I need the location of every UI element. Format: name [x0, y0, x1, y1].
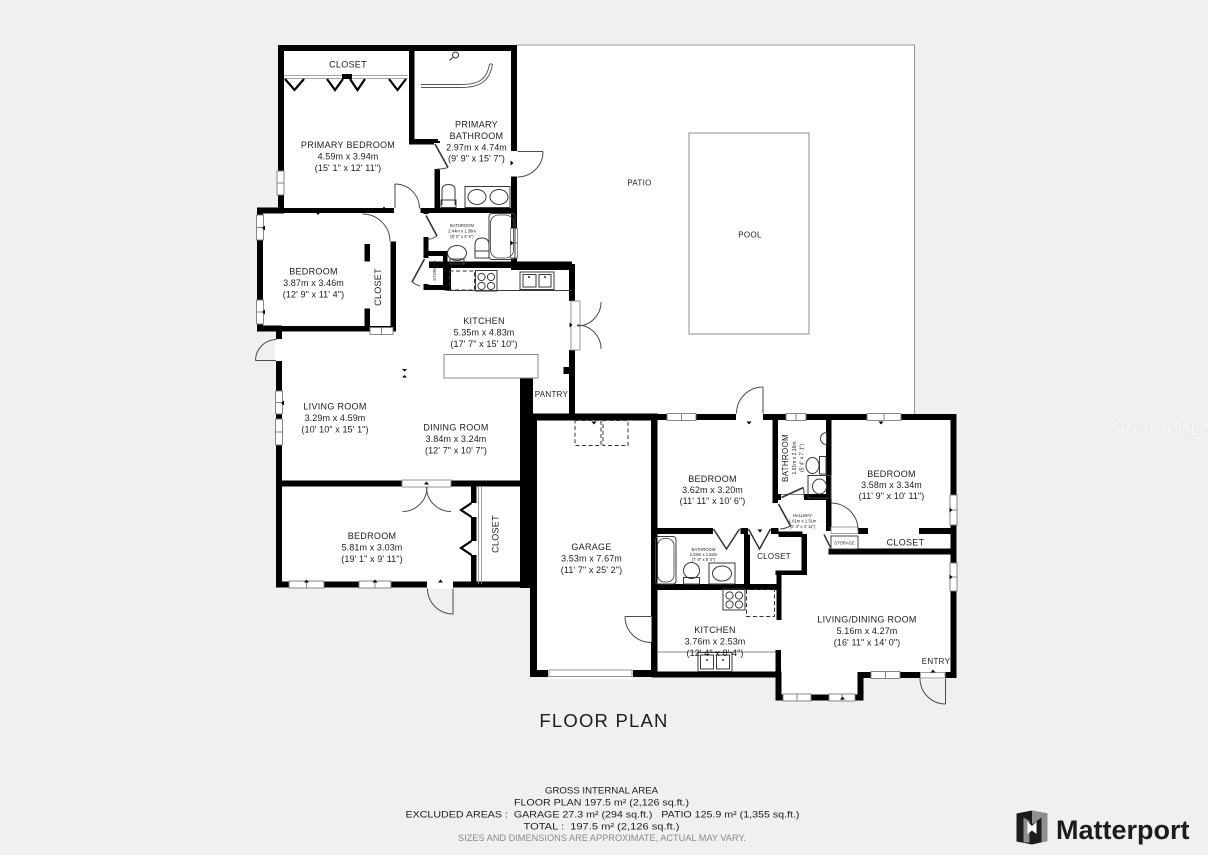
svg-text:BATHROOM: BATHROOM	[450, 131, 504, 141]
svg-text:PATIO: PATIO	[627, 179, 651, 188]
svg-text:1.61m x 2.16m: 1.61m x 2.16m	[792, 441, 798, 474]
svg-text:3.87m x 3.46m: 3.87m x 3.46m	[283, 278, 344, 288]
svg-text:StellarMLS: StellarMLS	[1112, 418, 1208, 440]
svg-text:CLOSET: CLOSET	[887, 538, 925, 548]
svg-text:PRIMARY BEDROOM: PRIMARY BEDROOM	[301, 140, 395, 150]
svg-text:5.81m x 3.03m: 5.81m x 3.03m	[342, 543, 403, 553]
svg-text:5.16m x 4.27m: 5.16m x 4.27m	[837, 626, 898, 636]
svg-text:STORAGE: STORAGE	[432, 260, 437, 281]
svg-text:ENTRY: ENTRY	[922, 657, 951, 666]
svg-text:3.62m x 3.20m: 3.62m x 3.20m	[682, 485, 743, 495]
svg-text:CLOSET: CLOSET	[491, 515, 501, 553]
svg-text:FLOOR PLAN: FLOOR PLAN	[539, 710, 668, 731]
svg-text:(5' 4" x 4' 11"): (5' 4" x 4' 11")	[790, 524, 816, 529]
svg-text:3.76m x 2.53m: 3.76m x 2.53m	[685, 637, 746, 647]
svg-text:LIVING/DINING ROOM: LIVING/DINING ROOM	[817, 615, 916, 625]
svg-text:(7' 6" x 5' 0"): (7' 6" x 5' 0")	[692, 557, 716, 562]
svg-text:(11' 9" x 10' 11"): (11' 9" x 10' 11")	[859, 491, 925, 501]
svg-text:(11' 7" x 25' 2"): (11' 7" x 25' 2")	[561, 565, 622, 575]
svg-text:3.84m x 3.24m: 3.84m x 3.24m	[426, 434, 487, 444]
svg-text:3.58m x 3.34m: 3.58m x 3.34m	[861, 480, 922, 490]
svg-text:(16' 11" x 14' 0"): (16' 11" x 14' 0")	[834, 638, 901, 648]
svg-text:PANTRY: PANTRY	[535, 390, 569, 399]
svg-text:STORAGE: STORAGE	[834, 541, 855, 546]
svg-text:4.59m x 3.94m: 4.59m x 3.94m	[318, 152, 379, 162]
svg-text:(17' 7" x 15' 10"): (17' 7" x 15' 10")	[450, 339, 517, 349]
svg-text:(9' 9" x 15' 7"): (9' 9" x 15' 7")	[448, 154, 505, 164]
svg-text:(12' 7" x 10' 7"): (12' 7" x 10' 7")	[425, 446, 487, 456]
svg-text:BATHROOM: BATHROOM	[781, 434, 790, 482]
svg-text:KITCHEN: KITCHEN	[694, 625, 736, 635]
svg-text:(12' 9" x 11' 4"): (12' 9" x 11' 4")	[283, 290, 344, 300]
svg-text:Matterport: Matterport	[1056, 815, 1190, 845]
svg-text:SIZES AND DIMENSIONS ARE APPRO: SIZES AND DIMENSIONS ARE APPROXIMATE, AC…	[458, 832, 746, 843]
svg-text:(12' 4" x 8' 4"): (12' 4" x 8' 4")	[687, 648, 744, 658]
svg-text:(5' 4" x 7' 1"): (5' 4" x 7' 1")	[800, 444, 806, 472]
svg-text:3.53m x 7.67m: 3.53m x 7.67m	[561, 554, 622, 564]
svg-text:BATHROOM: BATHROOM	[450, 223, 474, 228]
svg-text:(19' 1" x 9' 11"): (19' 1" x 9' 11")	[341, 554, 402, 564]
svg-text:CLOSET: CLOSET	[757, 552, 791, 561]
svg-text:LIVING ROOM: LIVING ROOM	[303, 402, 366, 412]
svg-text:5.35m x 4.83m: 5.35m x 4.83m	[454, 328, 515, 338]
svg-text:GROSS INTERNAL AREA: GROSS INTERNAL AREA	[545, 785, 659, 796]
svg-text:1.61m x 1.31m: 1.61m x 1.31m	[789, 519, 817, 524]
svg-text:(10' 10" x 15' 1"): (10' 10" x 15' 1")	[301, 425, 368, 435]
svg-text:FLOOR PLAN 197.5 m² (2,126 sq.: FLOOR PLAN 197.5 m² (2,126 sq.ft.)	[514, 797, 689, 808]
svg-text:CLOSET: CLOSET	[373, 268, 383, 306]
svg-text:TOTAL : 197.5 m² (2,126 sq.ft: TOTAL : 197.5 m² (2,126 sq.ft.)	[524, 821, 680, 832]
svg-text:BEDROOM: BEDROOM	[688, 474, 737, 484]
svg-text:KITCHEN: KITCHEN	[463, 316, 505, 326]
svg-text:3.29m x 4.59m: 3.29m x 4.59m	[305, 413, 366, 423]
svg-text:2.44m x 1.38m: 2.44m x 1.38m	[448, 229, 476, 234]
svg-text:(8' 0" x 4' 6"): (8' 0" x 4' 6")	[450, 234, 474, 239]
svg-text:BEDROOM: BEDROOM	[867, 469, 916, 479]
svg-text:2.97m x 4.74m: 2.97m x 4.74m	[446, 143, 507, 153]
svg-text:(11' 11" x 10' 6"): (11' 11" x 10' 6")	[680, 496, 746, 506]
svg-text:BEDROOM: BEDROOM	[289, 267, 338, 277]
svg-text:HALLWAY: HALLWAY	[793, 513, 812, 518]
svg-text:BEDROOM: BEDROOM	[348, 531, 397, 541]
svg-text:GARAGE: GARAGE	[571, 542, 611, 552]
svg-text:DINING ROOM: DINING ROOM	[423, 423, 488, 433]
svg-text:(15' 1" x 12' 11"): (15' 1" x 12' 11")	[315, 163, 382, 173]
svg-text:EXCLUDED AREAS : GARAGE 27.3: EXCLUDED AREAS : GARAGE 27.3 m² (294 sq.…	[406, 809, 800, 820]
svg-text:CLOSET: CLOSET	[329, 60, 367, 70]
svg-text:POOL: POOL	[738, 231, 762, 240]
svg-text:PRIMARY: PRIMARY	[455, 120, 498, 130]
